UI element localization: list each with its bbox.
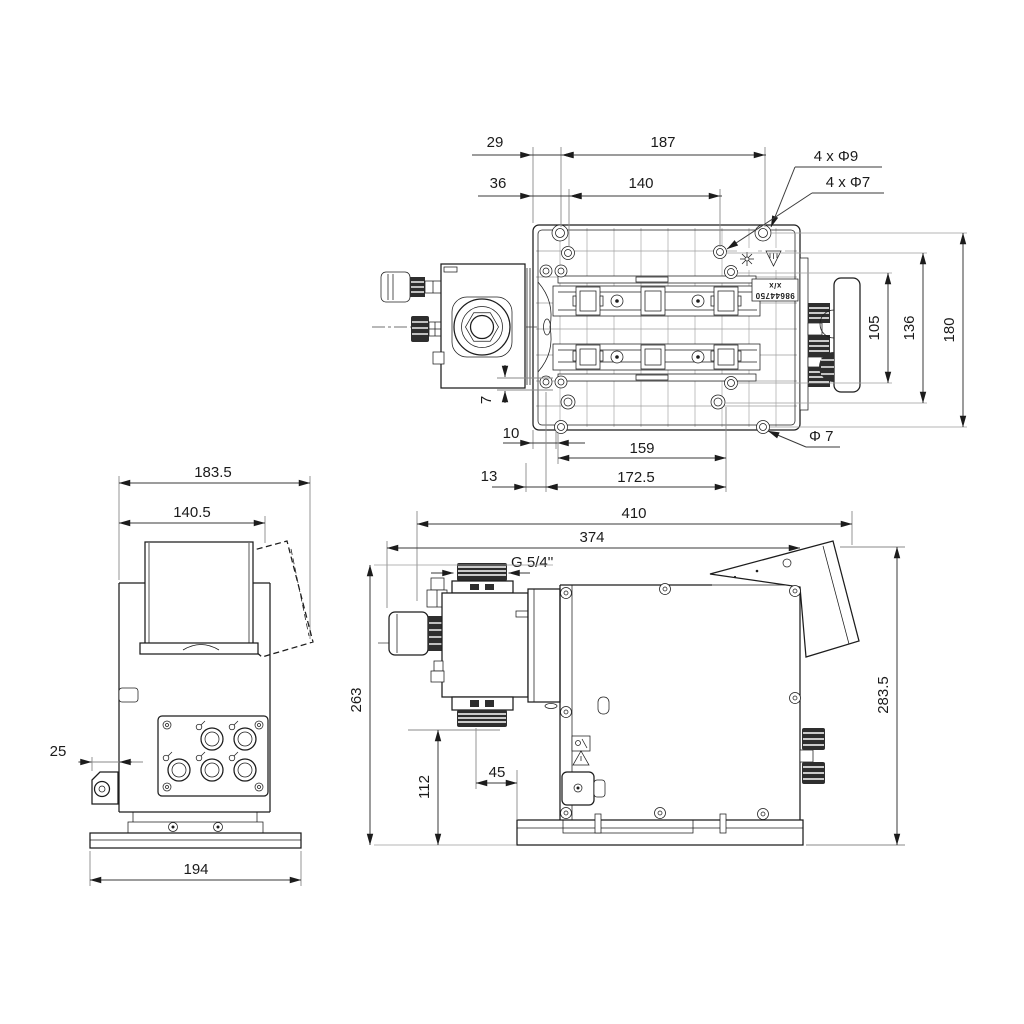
- plate-marking-line2: 98644750: [755, 291, 795, 300]
- dim-283-5: 283.5: [875, 676, 892, 714]
- hmi-edge-top: [834, 278, 860, 392]
- technical-drawing-canvas: x/x 98644750: [0, 0, 1024, 1024]
- base-plate-side: [90, 833, 301, 848]
- pump-front-drawing: [378, 541, 859, 845]
- dim-13: 13: [481, 468, 498, 485]
- dim-410: 410: [621, 505, 646, 522]
- dim-159: 159: [629, 440, 654, 457]
- dim-thread-label: G 5/4'': [511, 554, 554, 571]
- pump-body-side: [90, 541, 313, 848]
- pump-head-top: [372, 264, 551, 388]
- dim-172-5: 172.5: [617, 469, 655, 486]
- dim-180: 180: [941, 317, 958, 342]
- hmi-panel-front: [710, 541, 859, 657]
- discharge-valve-thread: [457, 563, 507, 581]
- front-view: 410 374 G 5/4'': [348, 505, 905, 845]
- cable-gland-front: [389, 612, 428, 655]
- dim-183-5: 183.5: [194, 464, 232, 481]
- dim-105: 105: [866, 315, 883, 340]
- hmi-cover-closed: [145, 542, 253, 648]
- technical-drawing-page: x/x 98644750: [0, 0, 1024, 1024]
- dim-36: 36: [490, 175, 507, 192]
- dim-194: 194: [183, 861, 208, 878]
- base-foot-front: [517, 820, 803, 845]
- dim-374: 374: [579, 529, 604, 546]
- dim-263: 263: [348, 687, 365, 712]
- warning-label: [572, 736, 590, 765]
- dim-dia7-label: Φ 7: [809, 428, 833, 445]
- dim-10: 10: [503, 425, 520, 442]
- control-panel-top: [800, 258, 860, 410]
- dim-4x7-label: 4 x Φ7: [826, 174, 871, 191]
- drain-port: [562, 772, 605, 805]
- dim-187: 187: [650, 134, 675, 151]
- dim-45: 45: [489, 764, 506, 781]
- lower-rail: [553, 344, 760, 381]
- recycle-icon: [740, 252, 754, 266]
- dim-25: 25: [50, 743, 67, 760]
- dim-29: 29: [487, 134, 504, 151]
- side-view: 183.5 140.5: [50, 464, 313, 886]
- top-view: x/x 98644750: [372, 134, 967, 492]
- upper-rail: [553, 276, 760, 316]
- dim-7: 7: [478, 396, 495, 404]
- plate-marking-line1: x/x: [769, 281, 782, 290]
- dosing-head: [442, 593, 528, 697]
- dim-140-5: 140.5: [173, 504, 211, 521]
- stroke-knob-top: [411, 316, 429, 342]
- dim-140: 140: [628, 175, 653, 192]
- dim-112: 112: [416, 775, 433, 799]
- dim-4x9-label: 4 x Φ9: [814, 148, 859, 165]
- dim-136: 136: [901, 315, 918, 340]
